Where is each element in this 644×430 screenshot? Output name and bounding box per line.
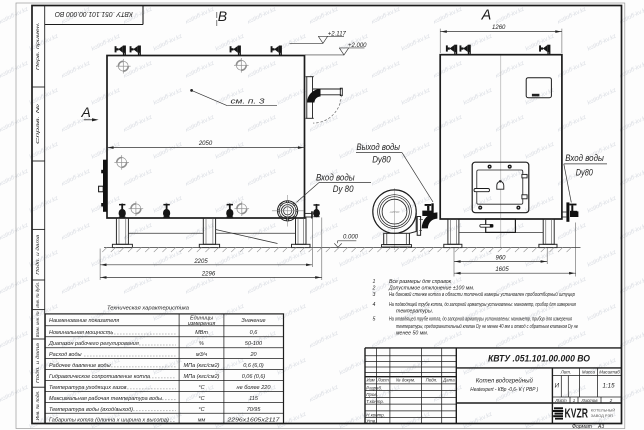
svg-text:Габариты котла (длинна х ширин: Габариты котла (длинна х ширина х высота… <box>49 418 169 424</box>
svg-text:И: И <box>555 383 560 390</box>
svg-text:Рабочее давление воды: Рабочее давление воды <box>49 363 111 369</box>
svg-text:1: 1 <box>373 279 376 285</box>
svg-text:20: 20 <box>249 352 257 358</box>
svg-text:%: % <box>199 341 204 347</box>
svg-text:мм: мм <box>198 418 206 424</box>
svg-text:960: 960 <box>495 255 506 261</box>
svg-text:Масса: Масса <box>582 369 596 374</box>
svg-text:Т.контр.: Т.контр. <box>366 399 384 404</box>
svg-text:На отводящей трубе котла, до з: На отводящей трубе котла, до запорной ар… <box>389 315 572 322</box>
svg-text:°С: °С <box>198 396 204 402</box>
svg-text:Dy 80: Dy 80 <box>333 184 354 194</box>
svg-text:На подводящей трубе котла, до: На подводящей трубе котла, до запорной а… <box>389 301 576 308</box>
svg-text:Допустимое отклонение ±100 мм: Допустимое отклонение ±100 мм. <box>388 286 474 292</box>
svg-text:Вход воды: Вход воды <box>565 153 604 163</box>
svg-text:2050: 2050 <box>198 141 213 147</box>
svg-text:0,6 (6,0): 0,6 (6,0) <box>243 363 264 369</box>
svg-text:1605: 1605 <box>495 267 509 273</box>
svg-text:Листов: Листов <box>581 398 599 403</box>
svg-text:Все размеры для справок: Все размеры для справок <box>389 279 452 285</box>
svg-text:На боковой стенке котла в обла: На боковой стенке котла в области топочн… <box>389 291 575 298</box>
svg-text:МВт: МВт <box>195 330 208 336</box>
svg-text:3: 3 <box>373 292 376 298</box>
svg-text:Dy80: Dy80 <box>372 154 391 164</box>
svg-text:МПа (кгс/см2): МПа (кгс/см2) <box>184 363 220 369</box>
svg-text:Инв. № подл.: Инв. № подл. <box>35 390 40 420</box>
svg-text:Разраб.: Разраб. <box>366 385 382 390</box>
svg-text:Гидравлическое сопротивление к: Гидравлическое сопротивление котла <box>49 374 150 380</box>
svg-text:Дата: Дата <box>442 378 455 383</box>
svg-text:Диапазон рабочего регулировани: Диапазон рабочего регулирования <box>48 341 139 347</box>
svg-text:Значение: Значение <box>241 318 265 324</box>
svg-text:Подп. и дата: Подп. и дата <box>35 342 40 383</box>
svg-text:Лит.: Лит. <box>560 369 571 374</box>
svg-text:5: 5 <box>373 316 376 322</box>
svg-text:№ докум.: № докум. <box>396 378 415 383</box>
svg-text:Масштаб: Масштаб <box>599 369 620 374</box>
svg-text:Подп. и дата: Подп. и дата <box>35 234 40 275</box>
svg-text:°С: °С <box>198 407 204 413</box>
svg-text:50-100: 50-100 <box>245 341 263 347</box>
svg-text:Вход воды: Вход воды <box>316 172 355 182</box>
svg-text:Пров.: Пров. <box>366 392 378 397</box>
svg-text:0,06 (0,6): 0,06 (0,6) <box>242 374 266 380</box>
svg-text:КВТУ .051.101.00.000 ВО: КВТУ .051.101.00.000 ВО <box>488 354 591 365</box>
svg-text:КВТУ .051.101.00.000 ВО: КВТУ .051.101.00.000 ВО <box>55 10 133 19</box>
svg-text:Изм: Изм <box>367 378 375 383</box>
svg-text:не более 220: не более 220 <box>237 385 272 391</box>
svg-text:2: 2 <box>372 286 376 292</box>
svg-text:115: 115 <box>249 396 259 402</box>
svg-text:1:15: 1:15 <box>602 383 615 390</box>
svg-text:Heatexpert - КВр -0,6- К ( РВР: Heatexpert - КВр -0,6- К ( РВР ) <box>470 387 538 393</box>
svg-text:°С: °С <box>198 385 204 391</box>
svg-text:А: А <box>81 104 91 120</box>
svg-text:А: А <box>481 8 492 24</box>
svg-text:АИР90: АИР90 <box>389 210 400 214</box>
svg-text:Перв. примен.: Перв. примен. <box>35 22 40 70</box>
svg-text:1260: 1260 <box>492 25 506 31</box>
svg-text:ЗАВОД РЭП: ЗАВОД РЭП <box>591 413 613 418</box>
svg-text:А3: А3 <box>597 424 604 430</box>
svg-text:Номинальная мощность: Номинальная мощность <box>49 330 113 336</box>
svg-text:2296х1605х2117: 2296х1605х2117 <box>226 418 280 424</box>
svg-text:2296: 2296 <box>201 271 216 277</box>
svg-text:Формат: Формат <box>572 424 592 430</box>
svg-text:Н.контр.: Н.контр. <box>366 412 385 417</box>
svg-text:Температура воды (вход/выход): Температура воды (вход/выход) <box>49 407 133 413</box>
svg-text:измерения: измерения <box>188 321 216 327</box>
svg-text:Утв.: Утв. <box>366 419 376 424</box>
svg-text:температуры.: температуры. <box>396 309 433 315</box>
svg-text:Температура уходящих газов: Температура уходящих газов <box>49 385 127 391</box>
svg-text:Справ. №: Справ. № <box>35 103 40 144</box>
svg-text:Инв. № дубл.: Инв. № дубл. <box>35 282 40 308</box>
svg-text:Выход воды: Выход воды <box>357 142 401 152</box>
svg-text:+2.000: +2.000 <box>348 43 367 49</box>
svg-text:КОТЕЛЬНЫЙ: КОТЕЛЬНЫЙ <box>591 408 616 413</box>
svg-text:Наименование показателя: Наименование показателя <box>49 318 119 324</box>
svg-text:температуры, предохранительный: температуры, предохранительный клапан Dу… <box>396 323 578 330</box>
svg-text:2205: 2205 <box>193 259 208 265</box>
svg-text:Взам. инв. №: Взам. инв. № <box>35 311 40 337</box>
svg-text:KVZR: KVZR <box>565 406 589 420</box>
svg-text:м3/ч: м3/ч <box>196 352 207 358</box>
svg-text:Техническая характеристика: Техническая характеристика <box>107 306 190 312</box>
svg-text:+2.117: +2.117 <box>328 31 347 37</box>
svg-text:4: 4 <box>373 302 376 308</box>
svg-text:Максимальная рабочая температу: Максимальная рабочая температура воды <box>49 396 162 402</box>
svg-text:Лист: Лист <box>376 378 389 383</box>
svg-text:см. п. 3: см. п. 3 <box>231 96 265 105</box>
svg-text:Котел водогрейный: Котел водогрейный <box>476 378 534 385</box>
svg-text:менее 50 мм.: менее 50 мм. <box>396 331 428 337</box>
svg-text:70/95: 70/95 <box>247 407 262 413</box>
svg-text:0.000: 0.000 <box>343 235 359 241</box>
svg-text:Расход воды: Расход воды <box>49 352 82 358</box>
svg-text:В: В <box>218 8 227 24</box>
svg-text:0,6: 0,6 <box>250 330 259 336</box>
svg-text:Dy80: Dy80 <box>576 168 593 178</box>
svg-text:Подп.: Подп. <box>426 378 438 383</box>
svg-text:Лист: Лист <box>554 398 567 403</box>
svg-text:2: 2 <box>609 398 613 403</box>
svg-text:МПа (кгс/см2): МПа (кгс/см2) <box>184 374 220 380</box>
